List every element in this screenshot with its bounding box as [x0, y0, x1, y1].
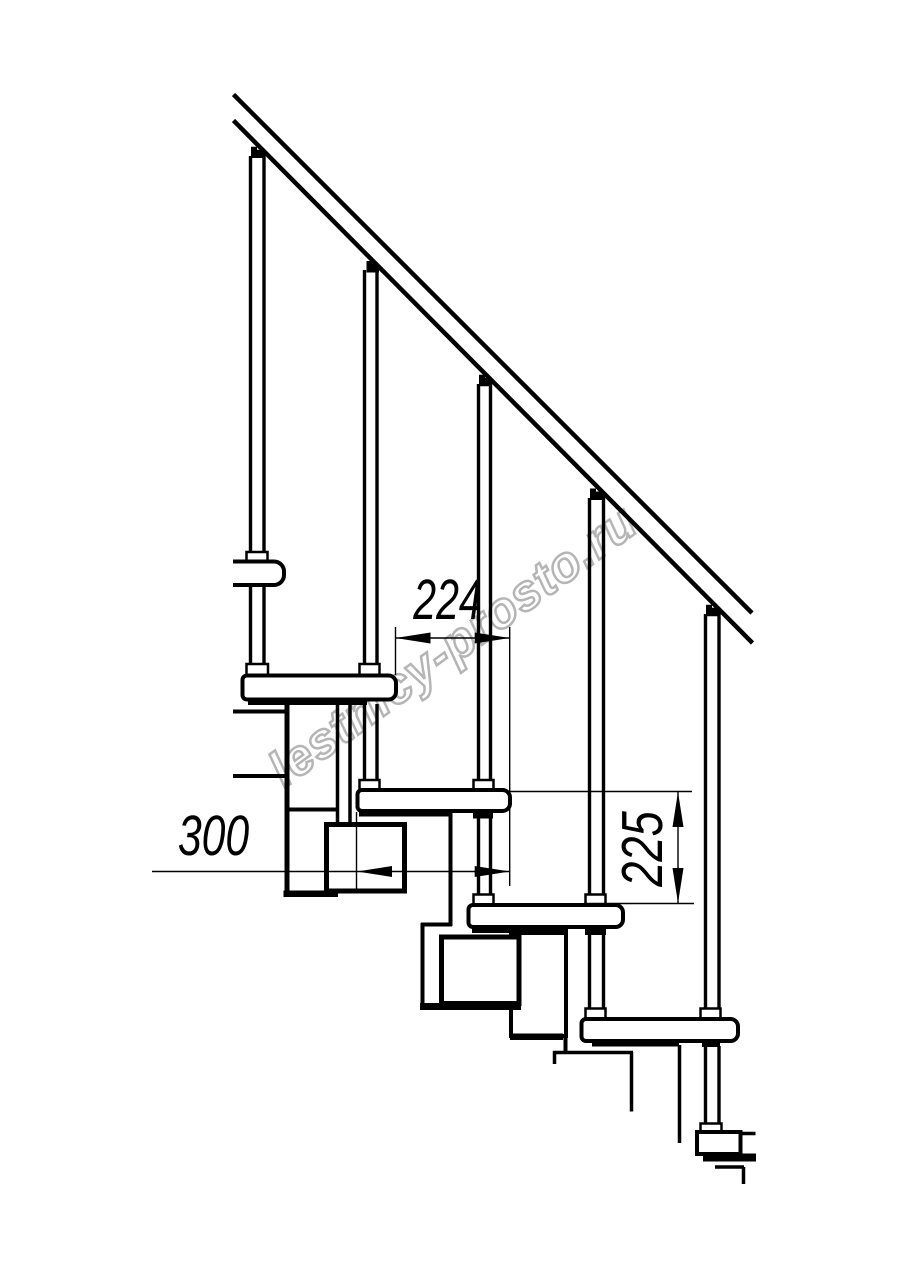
svg-text:225: 225 — [610, 811, 675, 888]
svg-text:300: 300 — [178, 804, 250, 868]
svg-text:224: 224 — [413, 568, 482, 632]
